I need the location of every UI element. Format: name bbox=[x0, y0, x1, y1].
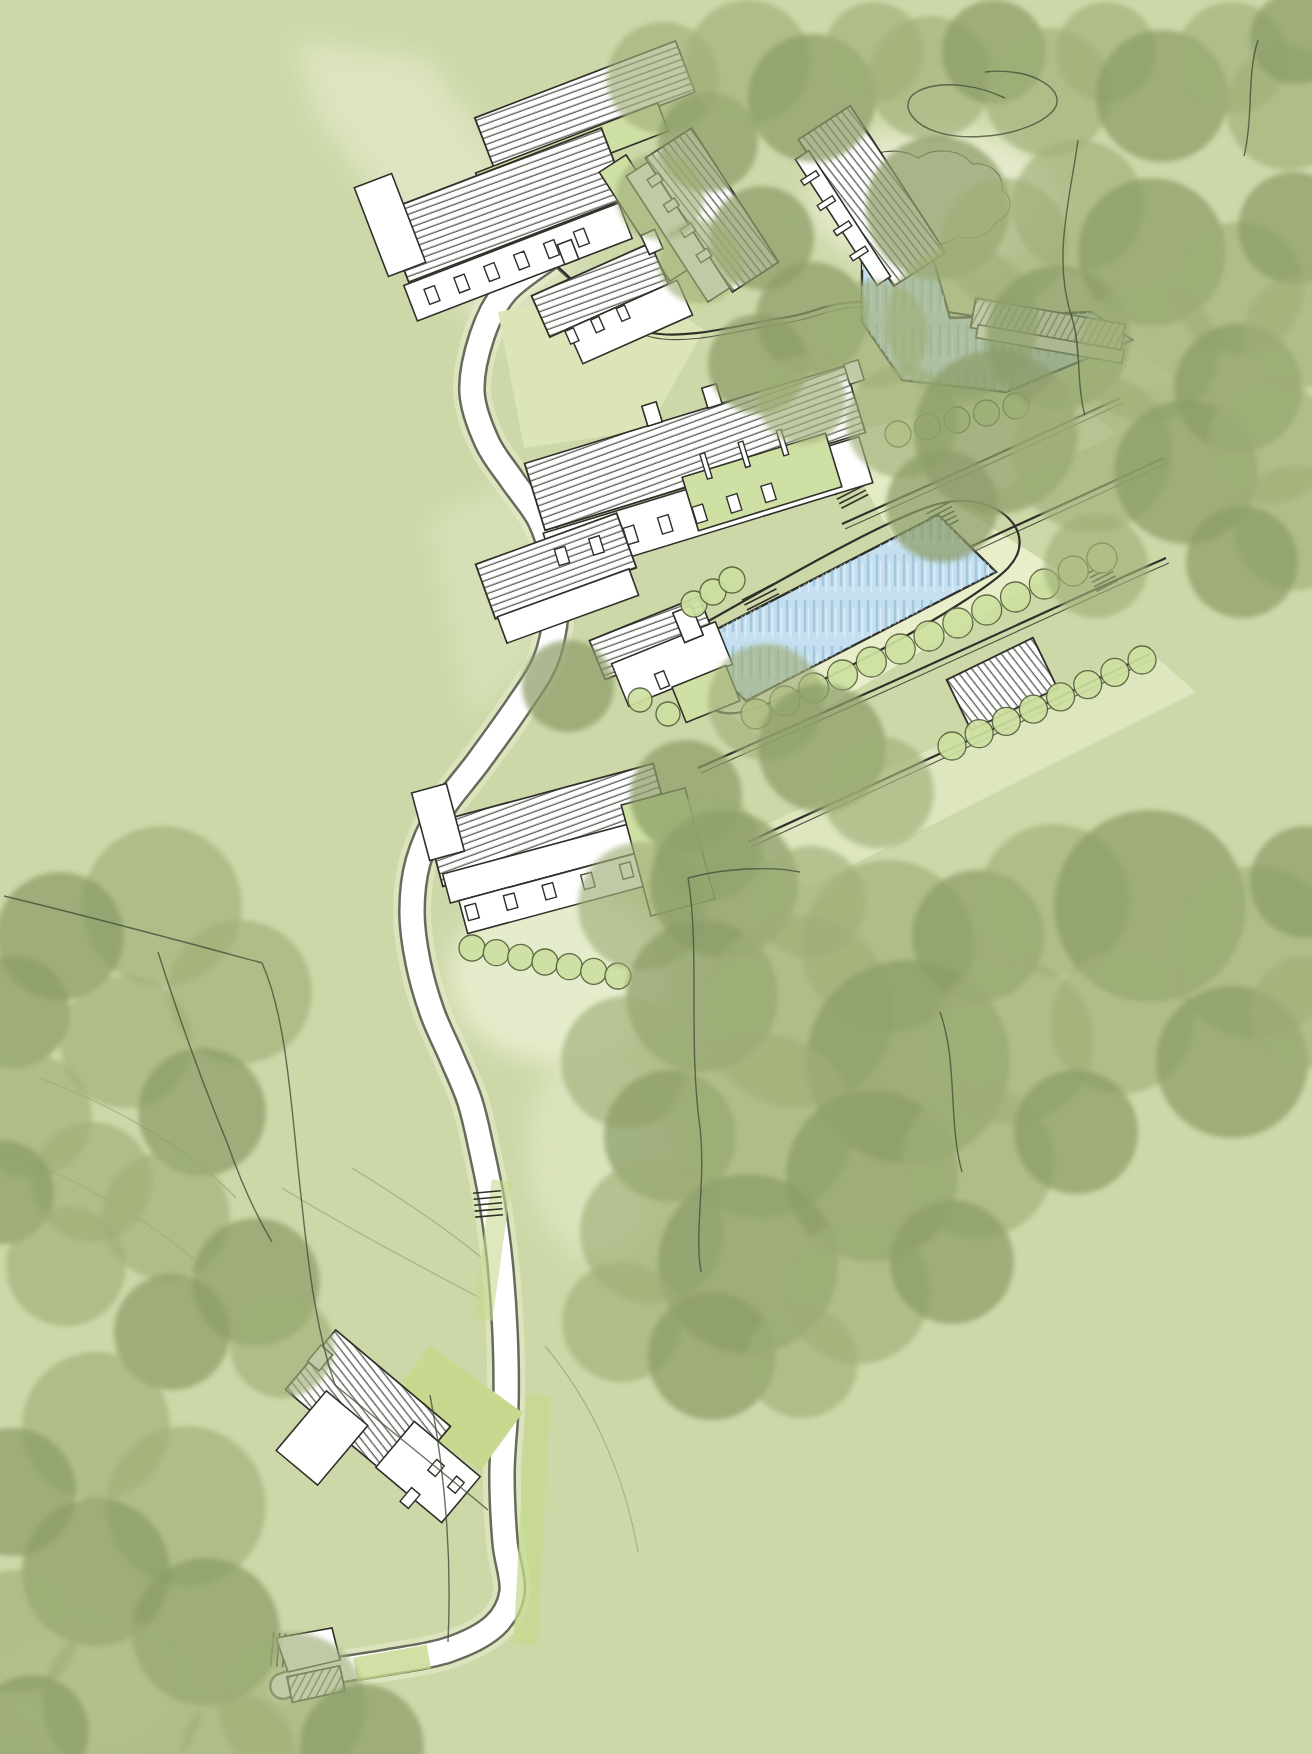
masterplan-sketch-canvas bbox=[0, 0, 1312, 1754]
masterplan-sketch bbox=[0, 0, 1312, 1754]
